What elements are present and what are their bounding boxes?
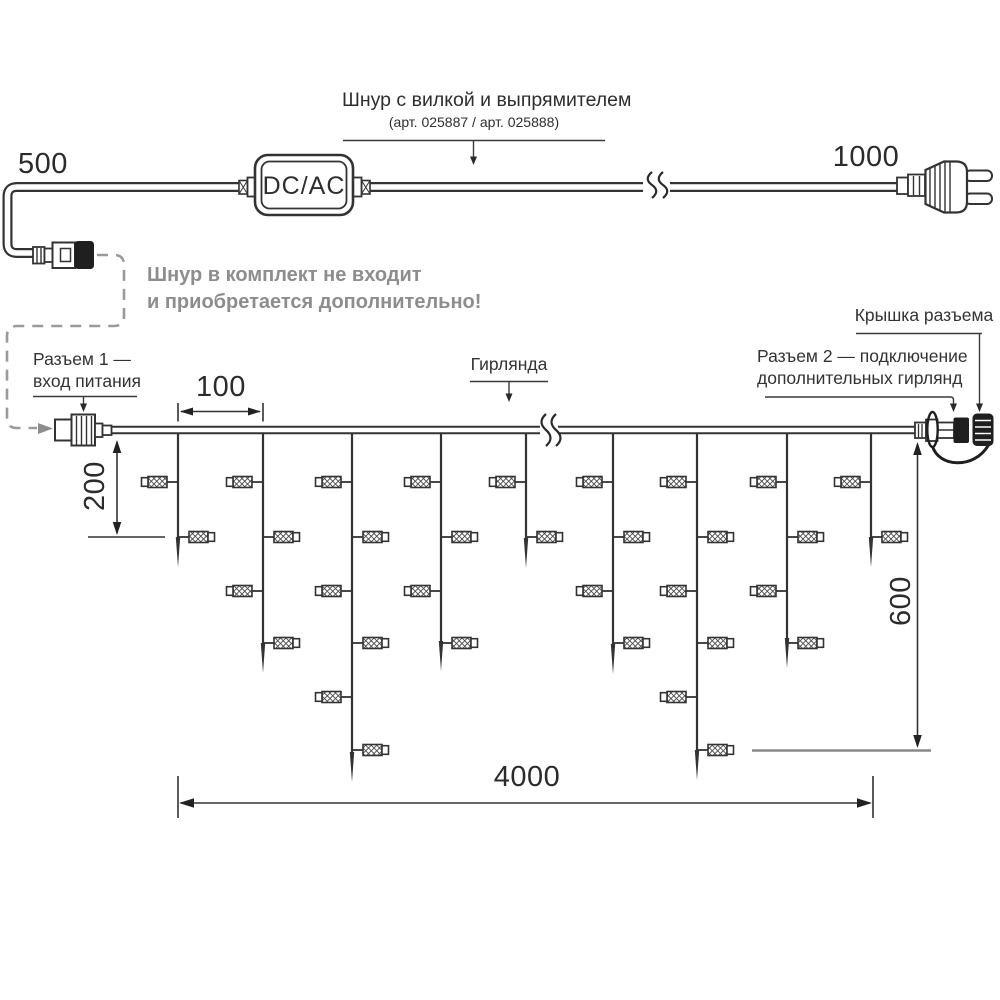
- lamp: [787, 532, 824, 543]
- power-cord: [8, 172, 899, 253]
- lamp: [316, 477, 353, 488]
- lamp: [835, 477, 872, 488]
- lamp: [613, 532, 650, 543]
- note-line2: и приобретается дополнительно!: [147, 291, 481, 313]
- lamp: [352, 745, 389, 756]
- lamp: [787, 638, 824, 649]
- lamp: [441, 638, 478, 649]
- lamp: [613, 638, 650, 649]
- lamp: [751, 477, 788, 488]
- lamp: [697, 745, 734, 756]
- lamp: [316, 586, 353, 597]
- lamp: [227, 477, 264, 488]
- lamp: [441, 532, 478, 543]
- cord-connector: [33, 241, 94, 269]
- strand: [661, 433, 734, 780]
- connector-2-body: [954, 418, 970, 444]
- lamp: [661, 586, 698, 597]
- lamp: [142, 477, 179, 488]
- lamp: [263, 532, 300, 543]
- lamp: [490, 477, 527, 488]
- lamp: [577, 586, 614, 597]
- connector1-label-line1: Разъем 1 —: [33, 350, 131, 369]
- lamp: [352, 532, 389, 543]
- dim-4000-label: 4000: [485, 762, 569, 794]
- cap-tether: [933, 445, 989, 463]
- strand: [835, 433, 908, 567]
- cord-subtitle: (арт. 025887 / арт. 025888): [342, 115, 606, 130]
- garland-label: Гирлянда: [467, 355, 551, 374]
- pointer-cord-title: [343, 141, 605, 166]
- lamp: [871, 532, 908, 543]
- lamp: [405, 586, 442, 597]
- lamp: [661, 692, 698, 703]
- lamp: [661, 477, 698, 488]
- connector-2: [915, 412, 994, 463]
- dim-1000-label: 1000: [825, 142, 907, 174]
- strand: [316, 433, 389, 782]
- lamp: [227, 586, 264, 597]
- lamp: [697, 532, 734, 543]
- strand: [227, 433, 300, 673]
- technical-diagram: DC/AC: [0, 0, 1000, 1000]
- note-line1: Шнур в комплект не входит: [147, 264, 422, 286]
- strand: [142, 433, 215, 567]
- lamp: [405, 477, 442, 488]
- dashed-route: [7, 255, 124, 434]
- garland-line: [112, 414, 915, 446]
- pointer-connector-2: [765, 397, 957, 412]
- connector-black-cap: [75, 241, 95, 269]
- dimension-100: [178, 403, 263, 422]
- dim-200-label: 200: [80, 440, 112, 532]
- plug-prong-top: [965, 171, 992, 182]
- pointer-garland: [470, 382, 548, 403]
- dim-600-label: 600: [886, 555, 918, 647]
- lamp: [697, 638, 734, 649]
- lamp: [751, 586, 788, 597]
- dcac-converter: DC/AC: [239, 155, 370, 215]
- cap-label: Крышка разъема: [852, 306, 996, 325]
- strand: [490, 433, 563, 568]
- lamp: [577, 477, 614, 488]
- lamp: [178, 532, 215, 543]
- lamp: [526, 532, 563, 543]
- cord-title: Шнур с вилкой и выпрямителем: [342, 90, 606, 111]
- pointer-connector-1: [33, 397, 137, 413]
- connector1-label-line2: вход питания: [33, 372, 141, 391]
- plug-prong-bottom: [965, 194, 992, 205]
- strand: [751, 433, 824, 668]
- strand: [405, 433, 478, 671]
- dim-100-label: 100: [189, 372, 253, 404]
- lamp: [263, 638, 300, 649]
- garland-strands: [142, 433, 908, 782]
- power-plug: [897, 162, 992, 213]
- dim-500-label: 500: [12, 149, 74, 181]
- lamp: [352, 638, 389, 649]
- connector2-label-line1: Разъем 2 — подключение: [757, 347, 959, 366]
- lamp: [316, 692, 353, 703]
- dcac-label: DC/AC: [263, 172, 346, 200]
- connector2-label-line2: дополнительных гирлянд: [757, 369, 959, 388]
- strand: [577, 433, 650, 674]
- connector-cap: [973, 414, 994, 447]
- dashed-arrowhead-icon: [38, 423, 53, 434]
